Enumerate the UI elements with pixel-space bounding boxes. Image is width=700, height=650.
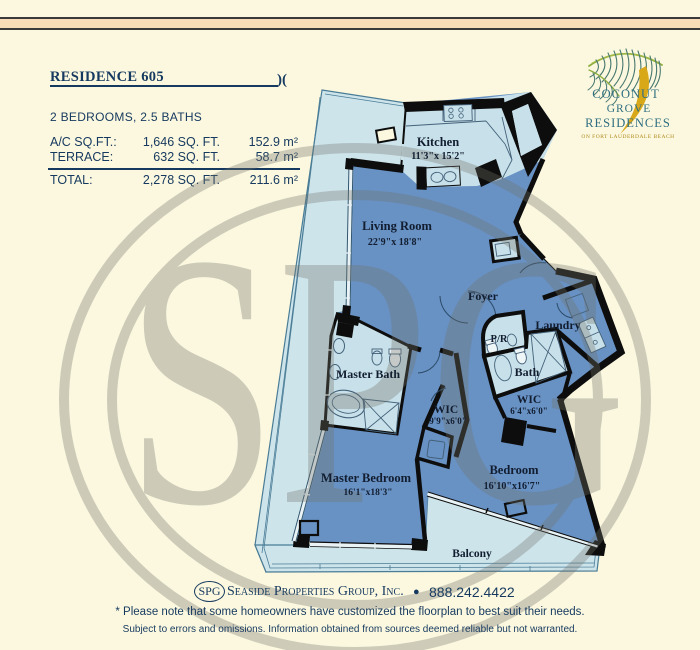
svg-text:P/R: P/R	[491, 334, 508, 345]
svg-text:Living Room: Living Room	[362, 219, 432, 233]
svg-text:Master Bedroom: Master Bedroom	[321, 471, 412, 485]
svg-text:22'9"x 18'8": 22'9"x 18'8"	[368, 237, 422, 248]
svg-text:COCONUT: COCONUT	[592, 87, 659, 101]
svg-text:9'9"x6'0": 9'9"x6'0"	[429, 416, 467, 426]
svg-text:ON FORT LAUDERDALE BEACH: ON FORT LAUDERDALE BEACH	[581, 134, 674, 140]
svg-text:11'3"x 15'2": 11'3"x 15'2"	[411, 151, 465, 162]
svg-text:Foyer: Foyer	[468, 289, 499, 303]
svg-text:Bath: Bath	[515, 365, 540, 379]
svg-text:WIC: WIC	[517, 394, 541, 406]
svg-text:16'1"x18'3": 16'1"x18'3"	[343, 488, 392, 498]
svg-text:Kitchen: Kitchen	[417, 135, 459, 149]
svg-text:6'4"x6'0": 6'4"x6'0"	[510, 406, 548, 416]
svg-text:16'10"x16'7": 16'10"x16'7"	[484, 481, 541, 492]
svg-text:GROVE: GROVE	[607, 103, 652, 115]
svg-text:Master Bath: Master Bath	[336, 367, 400, 381]
svg-text:Bedroom: Bedroom	[489, 463, 539, 477]
svg-text:WIC: WIC	[434, 404, 458, 416]
svg-text:RESIDENCES: RESIDENCES	[585, 116, 671, 130]
svg-text:Balcony: Balcony	[452, 548, 492, 560]
svg-text:Laundry: Laundry	[535, 318, 580, 332]
